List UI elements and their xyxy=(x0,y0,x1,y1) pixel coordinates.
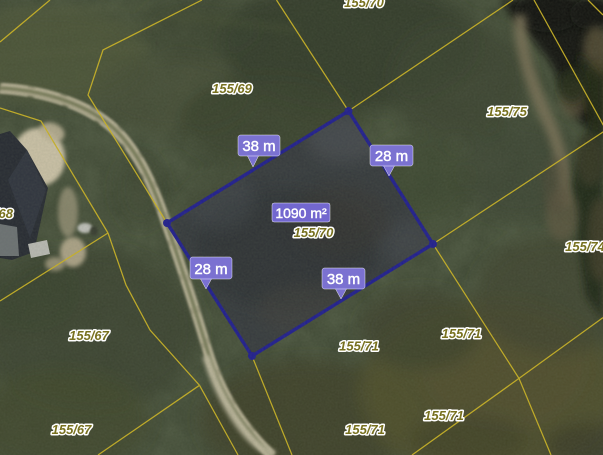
svg-text:155/75: 155/75 xyxy=(487,104,528,119)
svg-text:155/68: 155/68 xyxy=(0,206,14,221)
svg-text:28 m: 28 m xyxy=(375,148,408,165)
svg-text:155/69: 155/69 xyxy=(212,81,253,96)
svg-text:155/70: 155/70 xyxy=(344,0,385,10)
svg-text:155/71: 155/71 xyxy=(424,408,464,423)
svg-text:155/67: 155/67 xyxy=(52,422,93,437)
svg-text:1090 m²: 1090 m² xyxy=(275,205,327,221)
svg-text:38 m: 38 m xyxy=(327,271,360,288)
svg-text:155/71: 155/71 xyxy=(339,339,379,354)
svg-text:155/70: 155/70 xyxy=(294,225,335,240)
svg-text:155/74: 155/74 xyxy=(565,239,603,254)
svg-text:155/71: 155/71 xyxy=(442,326,482,341)
svg-text:155/67: 155/67 xyxy=(69,328,110,343)
svg-text:155/71: 155/71 xyxy=(345,422,385,437)
svg-text:38 m: 38 m xyxy=(242,138,275,155)
svg-text:28 m: 28 m xyxy=(194,261,227,278)
